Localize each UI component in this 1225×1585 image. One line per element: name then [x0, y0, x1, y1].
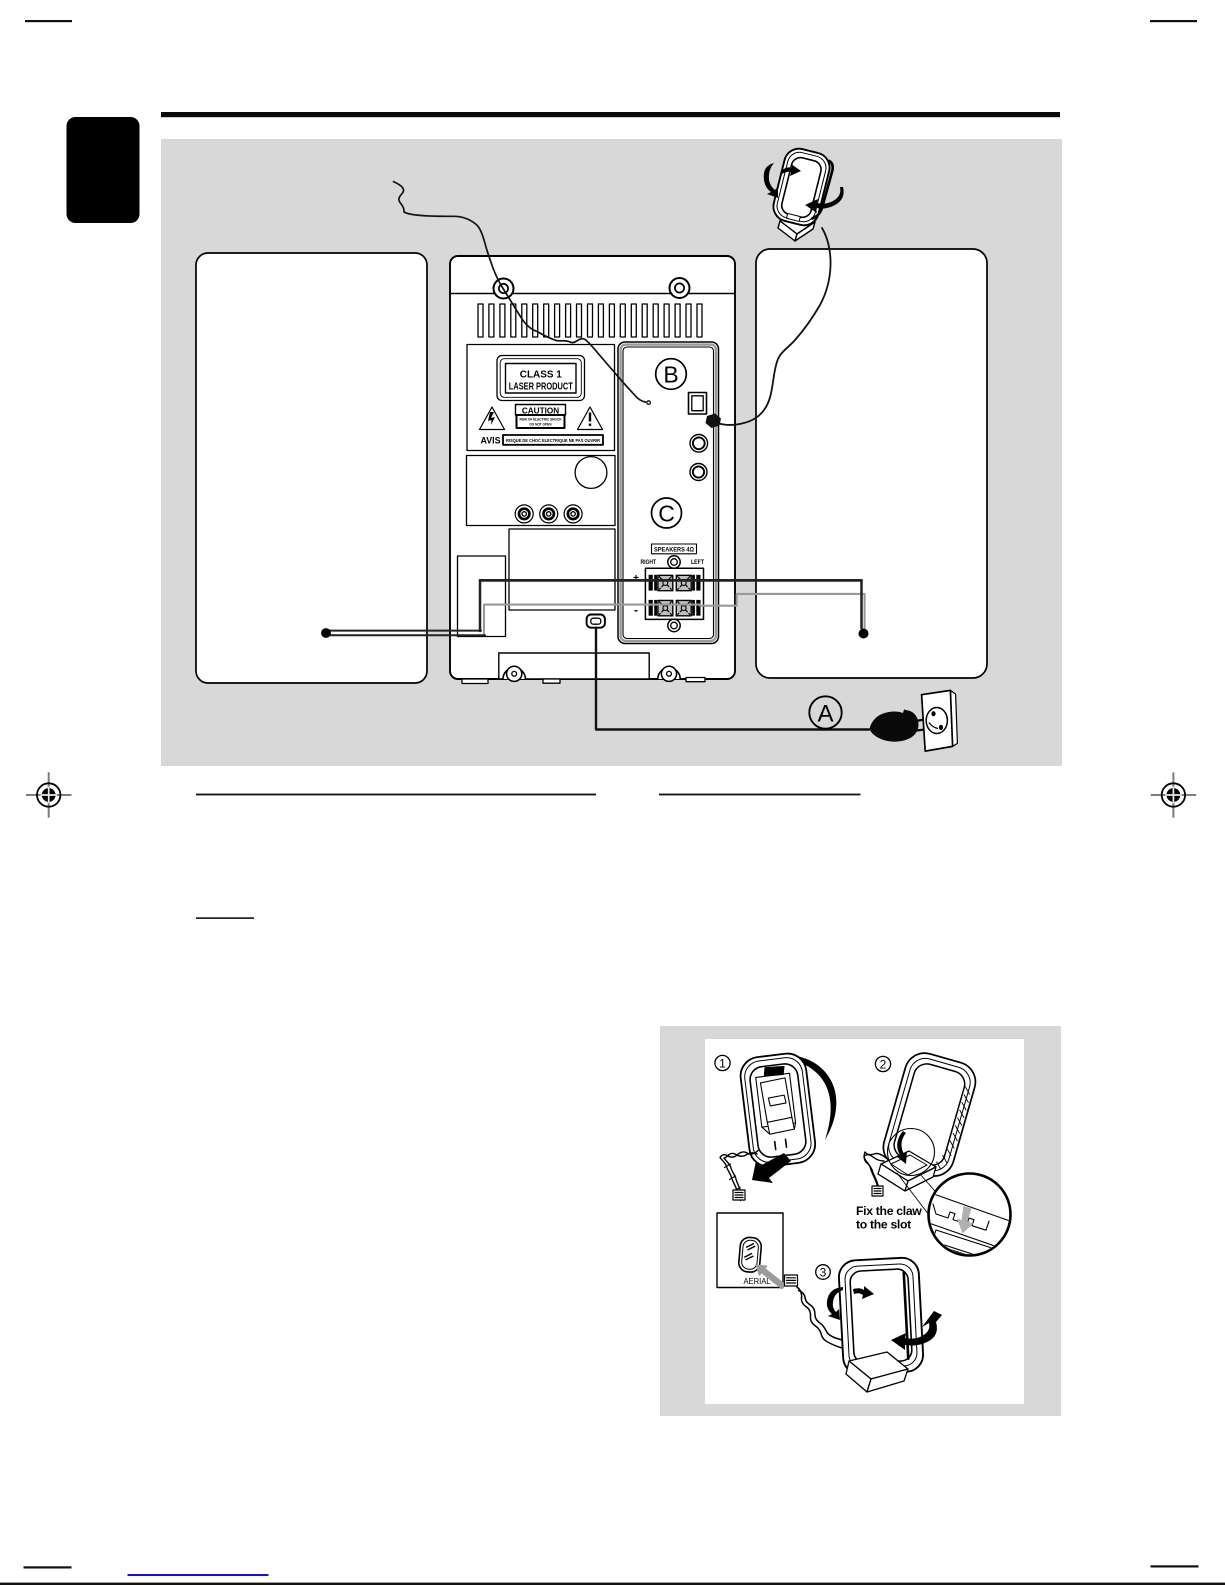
- svg-text:RIGHT: RIGHT: [641, 559, 657, 566]
- svg-text:1: 1: [719, 1056, 726, 1070]
- svg-text:RISQUE DE CHOC ELECTRIQUE NE P: RISQUE DE CHOC ELECTRIQUE NE PAS OUVRIR: [506, 438, 601, 443]
- svg-text:B: B: [663, 362, 678, 388]
- svg-text:CAUTION: CAUTION: [522, 406, 559, 415]
- svg-text:to the slot: to the slot: [856, 1218, 911, 1232]
- svg-text:LEFT: LEFT: [691, 559, 704, 566]
- svg-text:+: +: [633, 573, 639, 584]
- svg-text:CLASS 1: CLASS 1: [520, 370, 562, 381]
- svg-text:RISK OF ELECTRIC SHOCK: RISK OF ELECTRIC SHOCK: [520, 418, 562, 422]
- svg-text:C: C: [658, 501, 675, 527]
- svg-text:DO NOT OPEN: DO NOT OPEN: [530, 423, 552, 427]
- svg-text:2: 2: [880, 1057, 887, 1071]
- svg-text:AVIS: AVIS: [481, 435, 501, 445]
- svg-text:Fix the claw: Fix the claw: [856, 1204, 922, 1218]
- svg-text:AERIAL: AERIAL: [744, 1276, 771, 1286]
- svg-text:SPEAKERS 4Ω: SPEAKERS 4Ω: [654, 546, 694, 553]
- svg-text:A: A: [817, 701, 833, 728]
- svg-text:3: 3: [820, 1265, 827, 1279]
- svg-text:LASER PRODUCT: LASER PRODUCT: [509, 382, 573, 393]
